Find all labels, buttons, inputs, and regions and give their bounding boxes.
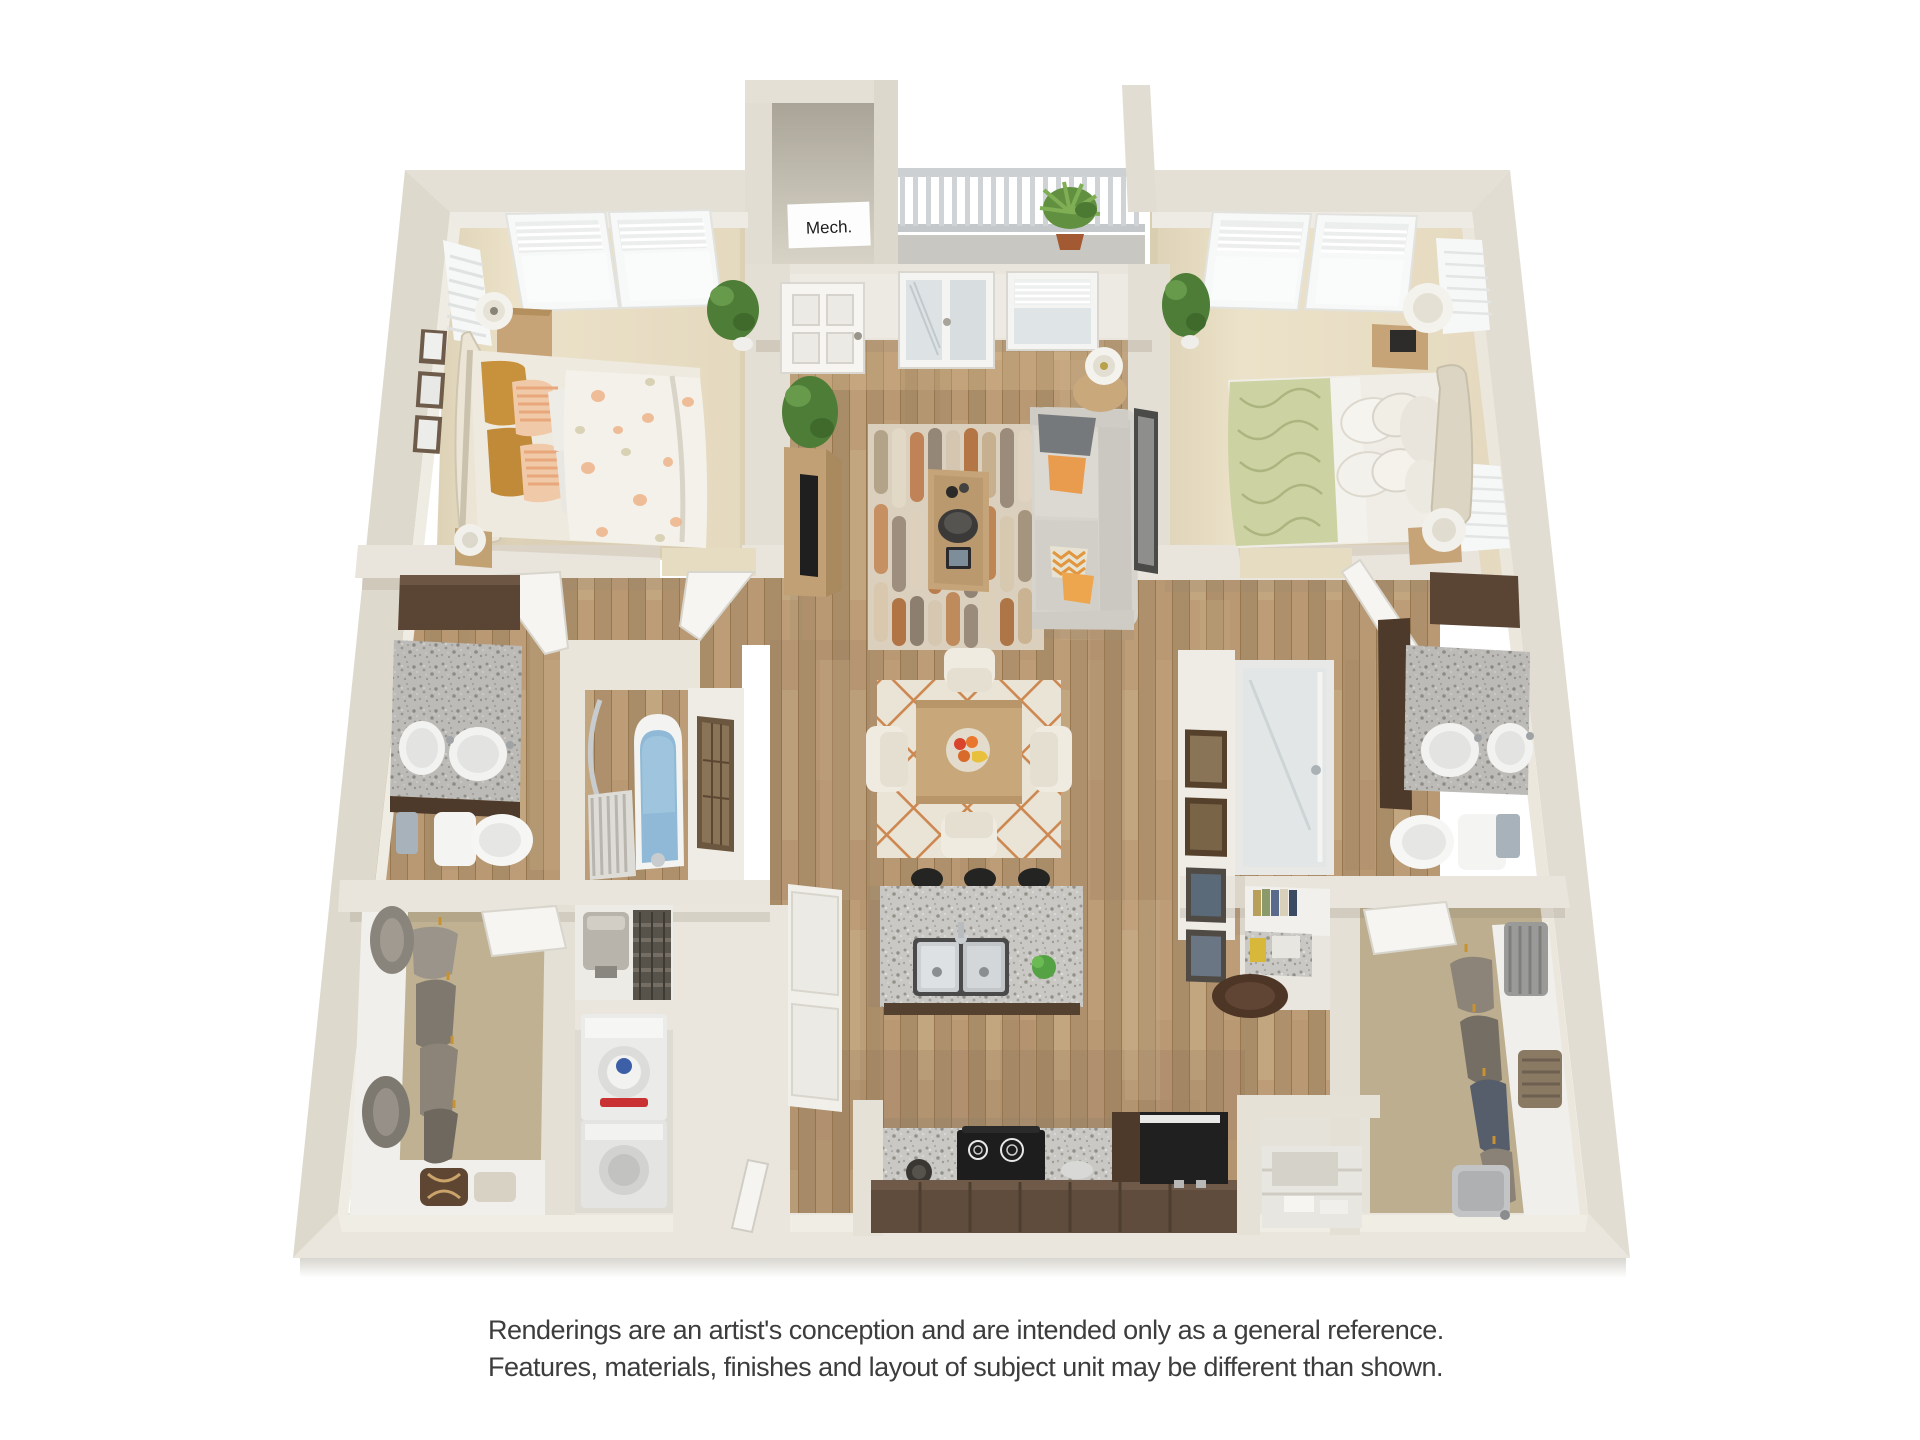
svg-text:Mech.: Mech. (806, 217, 853, 238)
